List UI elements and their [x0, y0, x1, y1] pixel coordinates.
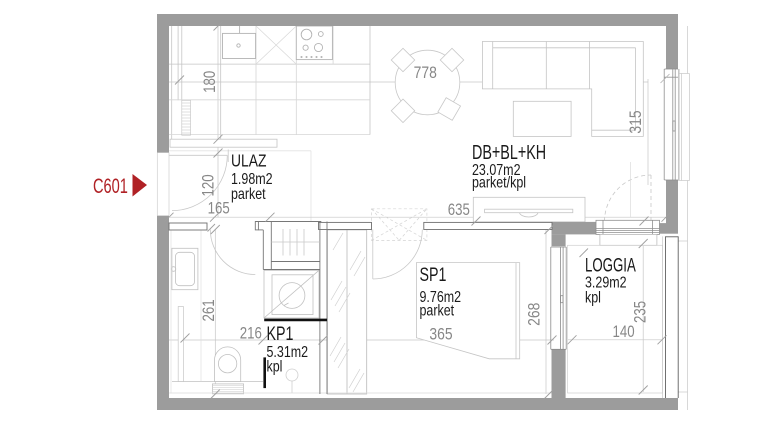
svg-text:778: 778: [414, 64, 437, 83]
svg-text:LOGGIA: LOGGIA: [585, 254, 636, 276]
svg-text:365: 365: [429, 325, 452, 344]
svg-text:235: 235: [631, 301, 650, 323]
svg-text:216: 216: [240, 324, 262, 343]
svg-text:261: 261: [199, 299, 218, 321]
svg-text:268: 268: [525, 303, 544, 326]
svg-text:kpl: kpl: [267, 358, 283, 376]
svg-text:DB+BL+KH: DB+BL+KH: [472, 140, 546, 163]
svg-text:C601: C601: [93, 173, 128, 198]
svg-text:parket: parket: [420, 302, 455, 320]
svg-text:315: 315: [627, 110, 646, 133]
svg-text:120: 120: [199, 174, 218, 196]
svg-text:SP1: SP1: [420, 264, 447, 285]
svg-text:180: 180: [200, 71, 219, 93]
svg-text:parket/kpl: parket/kpl: [472, 174, 526, 192]
svg-text:165: 165: [208, 199, 230, 218]
svg-text:140: 140: [612, 323, 634, 342]
svg-text:kpl: kpl: [585, 289, 601, 307]
svg-text:ULAZ: ULAZ: [231, 152, 267, 171]
svg-text:parket: parket: [231, 186, 266, 204]
svg-text:635: 635: [448, 201, 470, 220]
svg-text:KP1: KP1: [267, 323, 294, 344]
